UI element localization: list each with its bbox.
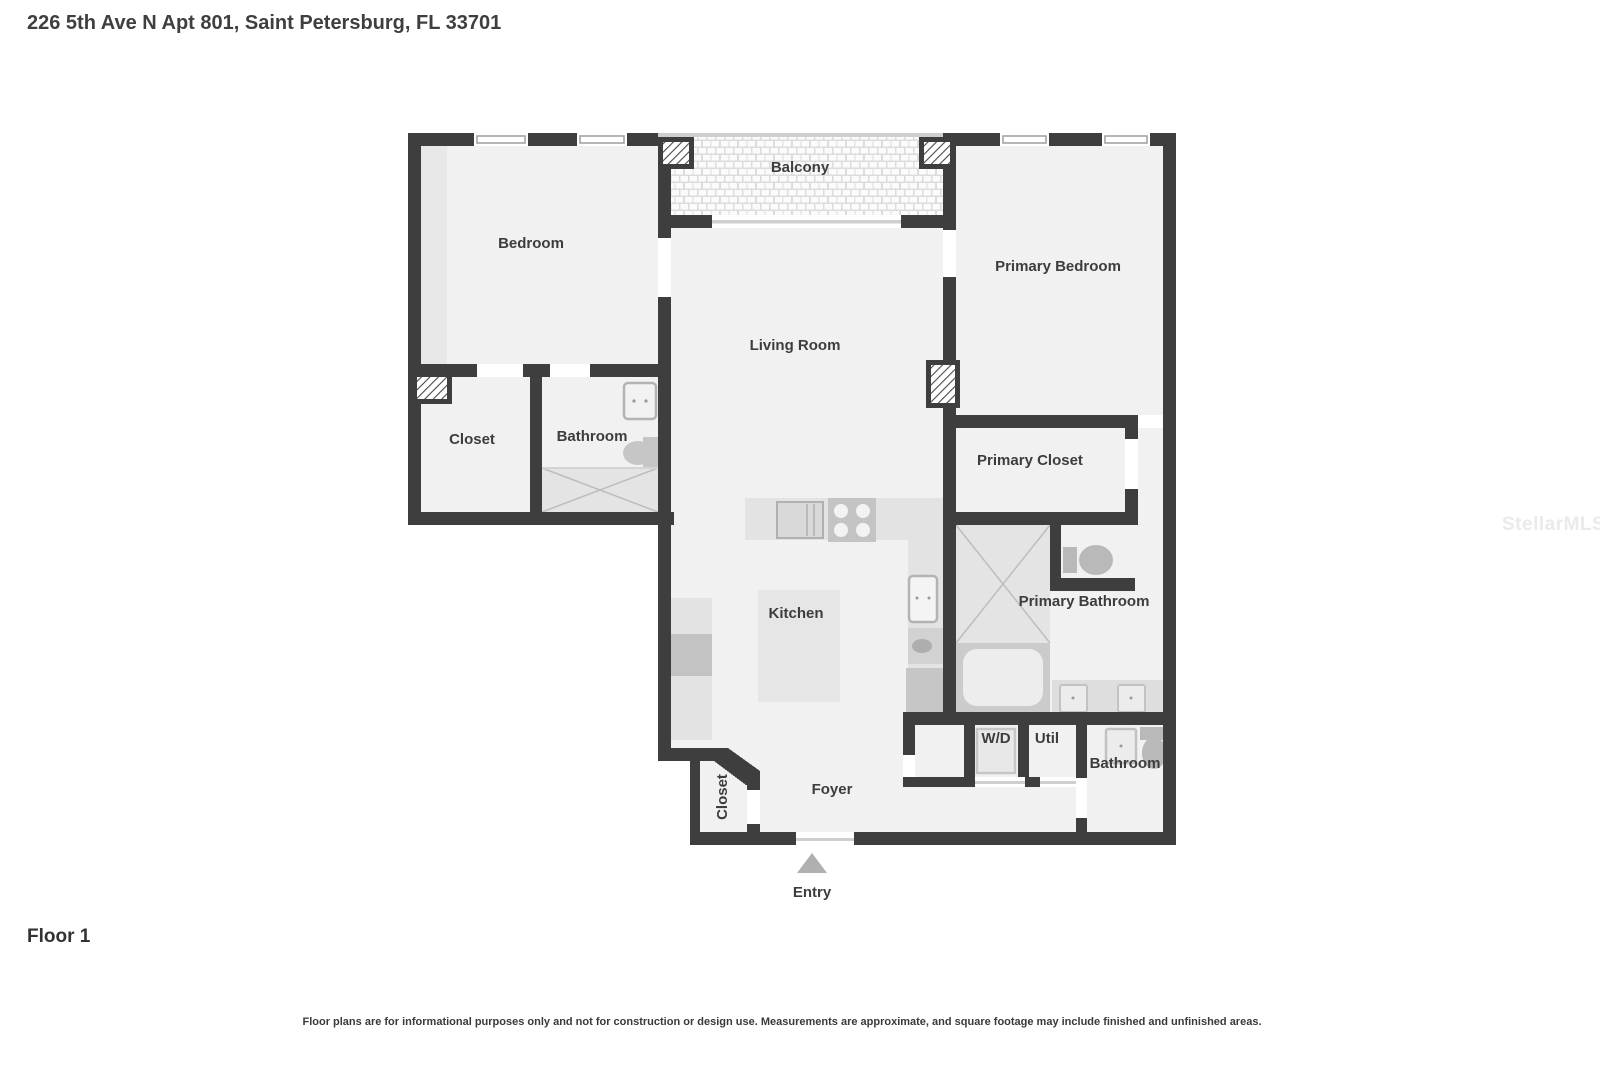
label-foyer: Foyer xyxy=(812,781,853,798)
door-opening xyxy=(658,238,671,297)
floor-plan-svg: Bedroom Balcony Primary Bedroom Living R… xyxy=(0,0,1600,1066)
double-vanity-icon xyxy=(1052,680,1163,712)
label-bathroom: Bathroom xyxy=(557,428,628,445)
shower-icon xyxy=(542,468,658,512)
label-primary-closet: Primary Closet xyxy=(977,452,1083,469)
label-closet: Closet xyxy=(449,431,495,448)
room-balcony-floor xyxy=(662,137,943,215)
primary-shower-icon xyxy=(956,525,1050,643)
dishwasher-icon xyxy=(906,668,943,712)
floor-plan-page: 226 5th Ave N Apt 801, Saint Petersburg,… xyxy=(0,0,1600,1066)
label-balcony: Balcony xyxy=(771,159,830,176)
label-washer-dryer: W/D xyxy=(981,730,1010,747)
toilet-icon xyxy=(624,383,656,419)
bedroom-closet-strip xyxy=(421,146,447,364)
column-hatch-icon xyxy=(926,360,960,408)
label-entry: Entry xyxy=(793,884,832,901)
label-bathroom-2: Bathroom xyxy=(1090,755,1161,772)
bathtub-icon xyxy=(956,643,1050,712)
door-opening xyxy=(550,364,590,377)
label-foyer-closet: Closet xyxy=(714,774,731,820)
room-passage-floor xyxy=(757,700,903,832)
primary-toilet-icon xyxy=(1063,545,1113,575)
floor-number-label: Floor 1 xyxy=(27,926,90,948)
label-living-room: Living Room xyxy=(750,337,841,354)
room-primary-bedroom-floor xyxy=(943,133,1176,425)
door-opening xyxy=(903,755,915,777)
column-hatch-icon xyxy=(412,372,452,404)
window xyxy=(577,133,627,146)
label-primary-bedroom: Primary Bedroom xyxy=(995,258,1121,275)
column-hatch-icon xyxy=(919,137,955,169)
disclaimer-text: Floor plans are for informational purpos… xyxy=(0,1016,1564,1028)
appliance-icon xyxy=(671,634,712,676)
door-opening xyxy=(477,364,523,377)
passage-opening xyxy=(1138,415,1163,428)
stove-icon xyxy=(828,498,876,542)
door-opening xyxy=(1076,778,1087,818)
label-kitchen: Kitchen xyxy=(768,605,823,622)
prep-sink-icon xyxy=(908,628,943,664)
door-opening xyxy=(747,790,760,824)
entry-arrow-icon xyxy=(797,853,827,873)
column-hatch-icon xyxy=(658,137,694,169)
window xyxy=(474,133,528,146)
stellar-mls-watermark: StellarMLS xyxy=(1502,514,1600,536)
door-opening xyxy=(943,230,956,277)
kitchen-sink-icon xyxy=(909,576,937,622)
label-primary-bathroom: Primary Bathroom xyxy=(1019,593,1150,610)
door-opening xyxy=(1125,439,1138,489)
window xyxy=(1000,133,1049,146)
refrigerator-icon xyxy=(777,502,823,538)
label-utility: Util xyxy=(1035,730,1059,747)
window xyxy=(1102,133,1150,146)
label-bedroom: Bedroom xyxy=(498,235,564,252)
